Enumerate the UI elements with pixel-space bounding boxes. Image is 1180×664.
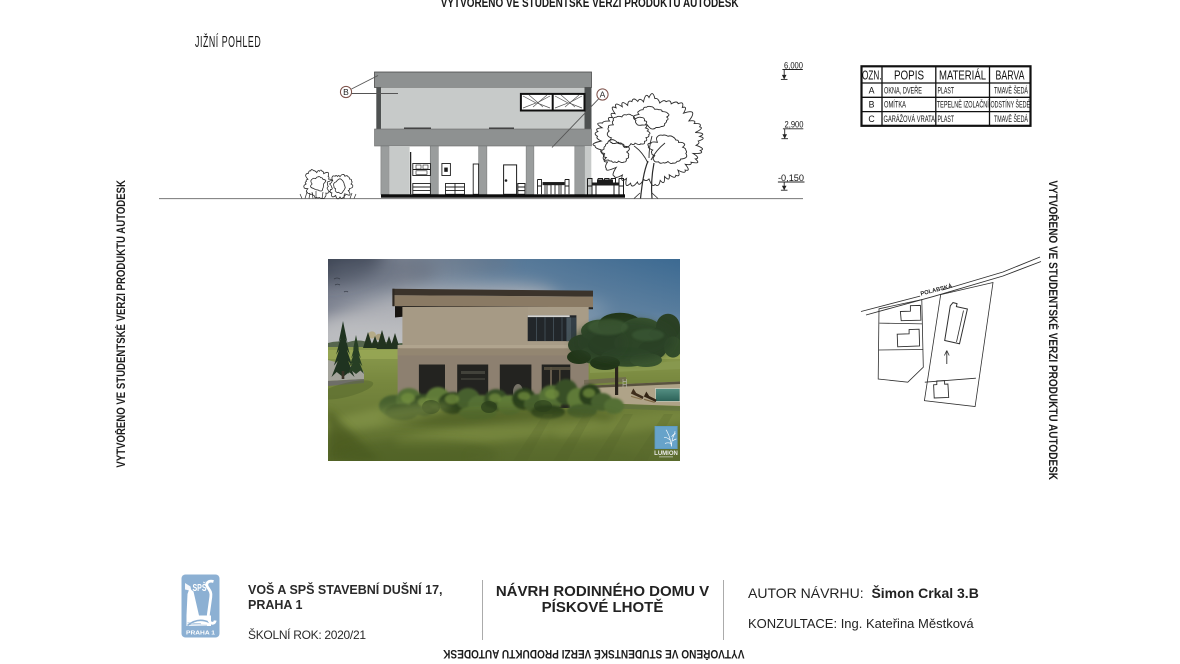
svg-text:SPŠ: SPŠ (193, 581, 207, 594)
svg-text:LUMION: LUMION (654, 451, 678, 457)
svg-text:PRAHA 1: PRAHA 1 (186, 630, 215, 636)
